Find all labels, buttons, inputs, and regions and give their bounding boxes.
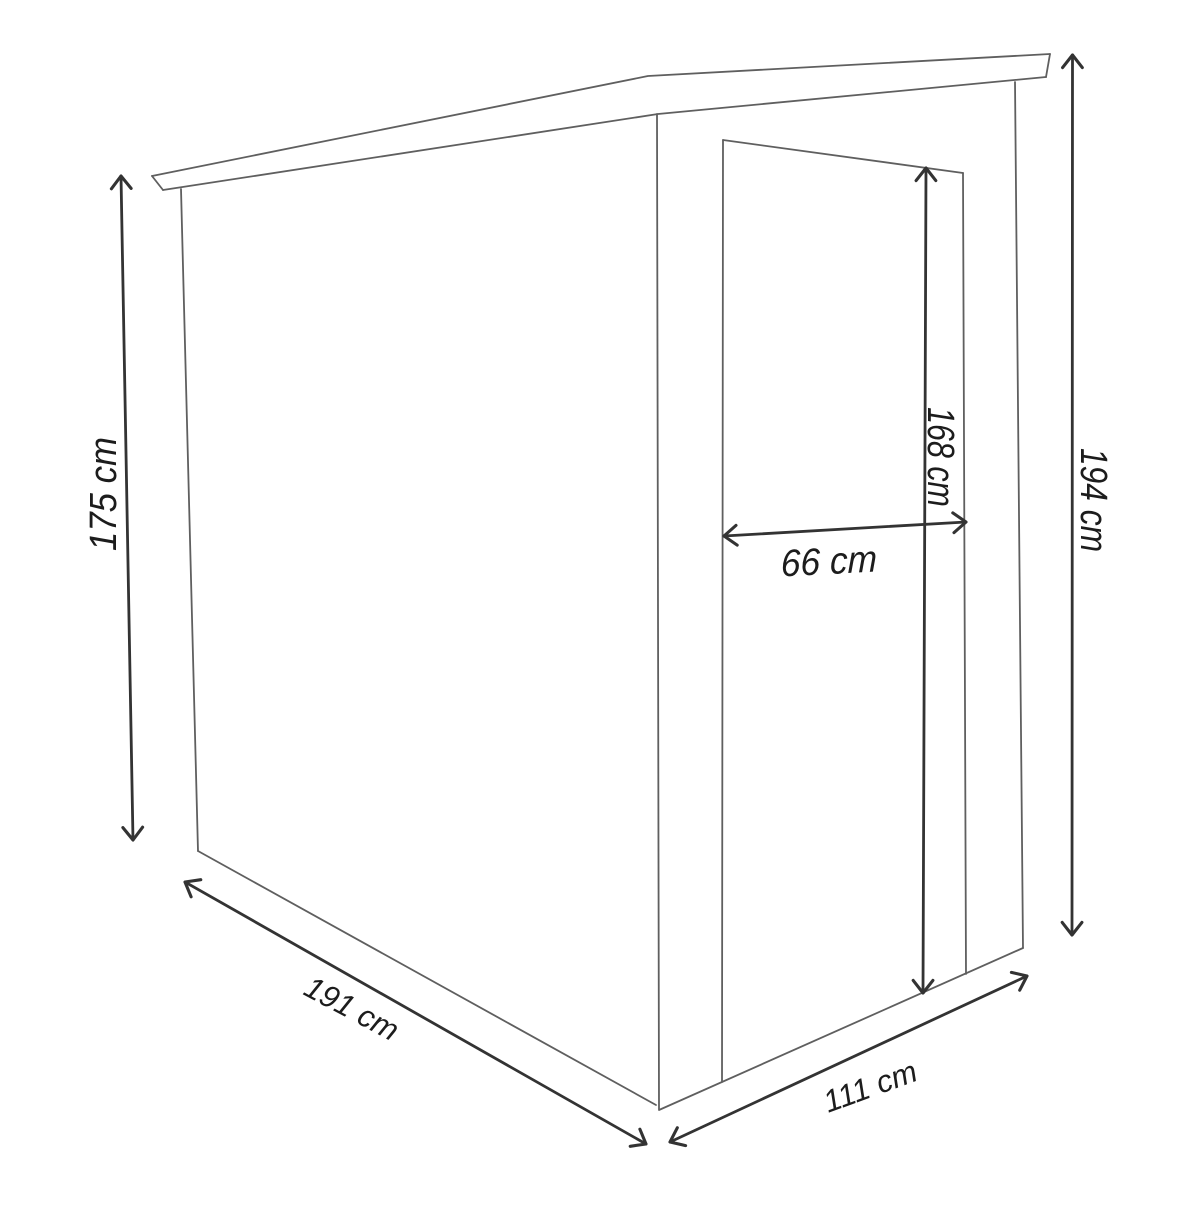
svg-text:175 cm: 175 cm	[82, 437, 125, 551]
svg-text:194 cm: 194 cm	[1072, 448, 1114, 552]
svg-text:111 cm: 111 cm	[819, 1053, 922, 1119]
svg-text:168 cm: 168 cm	[919, 407, 961, 507]
svg-text:66 cm: 66 cm	[781, 537, 877, 584]
svg-text:191 cm: 191 cm	[299, 969, 405, 1048]
